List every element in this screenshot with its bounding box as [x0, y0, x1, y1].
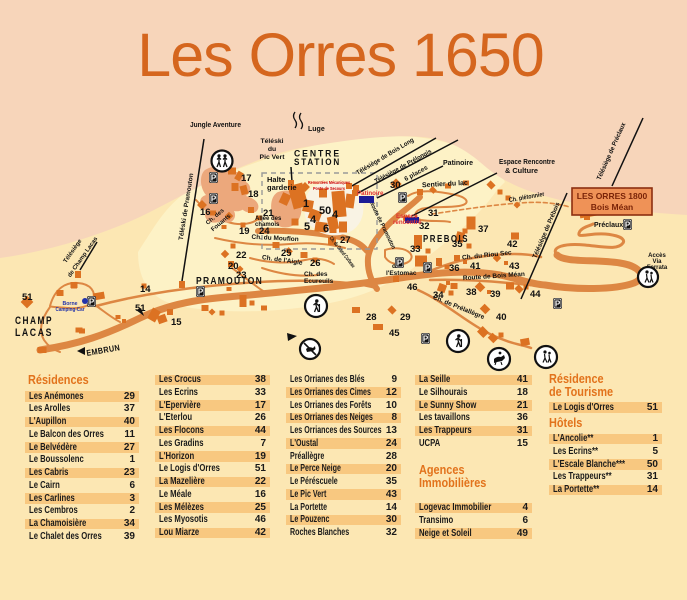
svg-text:P: P — [555, 300, 561, 309]
svg-text:4: 4 — [332, 209, 339, 221]
svg-text:50: 50 — [319, 205, 331, 217]
svg-text:Luge: Luge — [308, 126, 325, 133]
svg-text:Remontées Mécaniques: Remontées Mécaniques — [308, 180, 351, 185]
svg-text:1: 1 — [303, 198, 309, 210]
svg-text:29: 29 — [400, 312, 411, 323]
svg-text:18: 18 — [248, 189, 259, 200]
svg-text:& Culture: & Culture — [505, 166, 538, 175]
svg-text:36: 36 — [449, 263, 460, 274]
svg-text:31: 31 — [428, 208, 439, 219]
svg-text:P: P — [211, 174, 217, 183]
svg-text:Poste de Secours: Poste de Secours — [313, 186, 346, 191]
svg-text:17: 17 — [241, 173, 252, 184]
svg-text:5: 5 — [304, 221, 310, 233]
svg-text:19: 19 — [239, 226, 250, 237]
svg-text:30: 30 — [390, 180, 401, 191]
svg-text:P: P — [423, 335, 429, 344]
svg-text:34: 34 — [433, 290, 444, 301]
svg-text:LACAS: LACAS — [15, 327, 53, 339]
svg-text:39: 39 — [490, 289, 501, 300]
svg-text:26: 26 — [310, 258, 321, 269]
svg-text:Ecureuils: Ecureuils — [304, 278, 334, 285]
svg-text:Jungle Aventure: Jungle Aventure — [190, 120, 241, 129]
svg-text:23: 23 — [236, 270, 247, 281]
svg-text:P: P — [397, 259, 403, 268]
svg-text:40: 40 — [496, 312, 507, 323]
svg-text:16: 16 — [200, 207, 211, 218]
svg-text:15: 15 — [171, 317, 182, 328]
svg-text:46: 46 — [407, 282, 418, 293]
svg-text:21: 21 — [263, 208, 274, 219]
svg-text:STATION: STATION — [294, 157, 341, 167]
svg-text:22: 22 — [236, 250, 247, 261]
svg-text:P: P — [198, 288, 204, 297]
svg-text:25: 25 — [281, 248, 292, 259]
svg-text:14: 14 — [140, 284, 151, 295]
svg-text:44: 44 — [530, 289, 541, 300]
svg-text:P: P — [425, 264, 431, 273]
svg-text:43: 43 — [509, 261, 520, 272]
svg-text:LES ORRES 1800: LES ORRES 1800 — [577, 191, 648, 201]
svg-text:33: 33 — [410, 244, 421, 255]
svg-text:28: 28 — [366, 312, 377, 323]
svg-text:24: 24 — [259, 226, 270, 237]
svg-text:35: 35 — [452, 239, 463, 250]
svg-text:45: 45 — [389, 328, 400, 339]
svg-text:CHAMP: CHAMP — [15, 315, 53, 327]
svg-text:l'Estomac: l'Estomac — [386, 270, 417, 277]
svg-text:Téléski: Téléski — [260, 138, 283, 145]
svg-text:Espace Rencontre: Espace Rencontre — [499, 157, 555, 166]
svg-text:P: P — [89, 298, 95, 307]
svg-text:Patinoire: Patinoire — [357, 190, 384, 197]
svg-text:Patinoire: Patinoire — [443, 158, 473, 167]
svg-text:P: P — [625, 221, 631, 230]
svg-text:42: 42 — [507, 239, 518, 250]
svg-text:garderie: garderie — [267, 183, 297, 192]
svg-text:P: P — [400, 194, 406, 203]
svg-text:Camping-Car: Camping-Car — [56, 307, 86, 313]
svg-text:Pic Vert: Pic Vert — [260, 154, 286, 161]
svg-text:P: P — [211, 195, 217, 204]
svg-text:du: du — [268, 146, 276, 153]
svg-text:PRAMOUTON: PRAMOUTON — [196, 276, 263, 287]
svg-text:Bois Méan: Bois Méan — [591, 202, 634, 212]
svg-text:51: 51 — [22, 292, 33, 303]
svg-text:4: 4 — [310, 214, 317, 226]
svg-text:41: 41 — [470, 261, 481, 272]
svg-text:rencontre: rencontre — [393, 219, 422, 226]
svg-text:Préclaux: Préclaux — [594, 222, 623, 229]
svg-text:27: 27 — [340, 235, 351, 246]
svg-text:37: 37 — [478, 224, 489, 235]
svg-text:Ch. des: Ch. des — [304, 271, 328, 278]
svg-text:6: 6 — [323, 223, 329, 235]
svg-text:38: 38 — [466, 287, 477, 298]
